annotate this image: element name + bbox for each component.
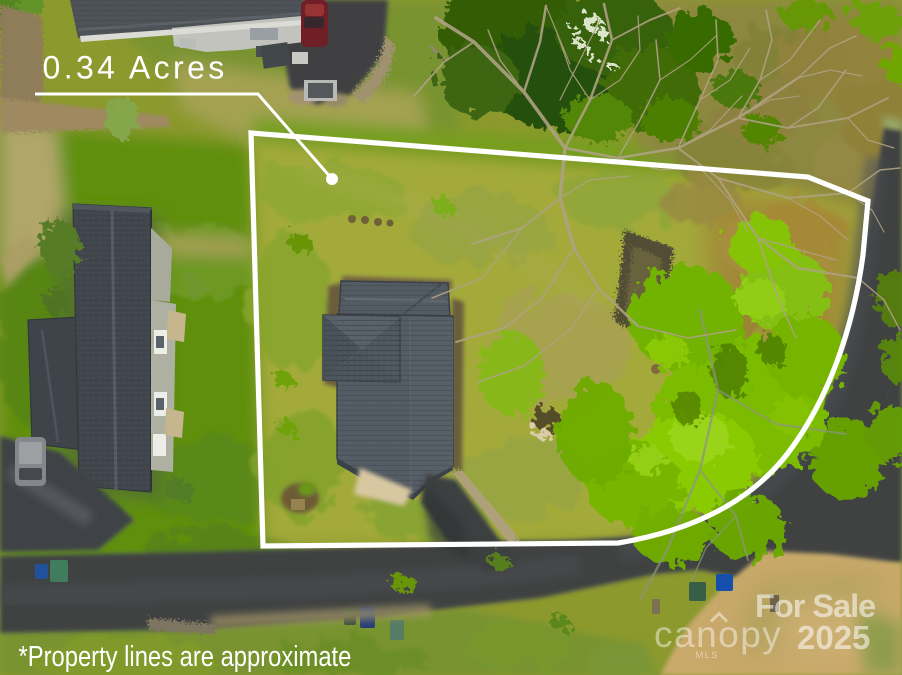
svg-text:canopy: canopy [654,614,782,655]
svg-text:2025: 2025 [797,619,870,656]
svg-text:MLS: MLS [696,650,719,661]
svg-text:*Property lines are approximat: *Property lines are approximate [19,640,352,673]
svg-text:0.34 Acres: 0.34 Acres [43,50,228,86]
